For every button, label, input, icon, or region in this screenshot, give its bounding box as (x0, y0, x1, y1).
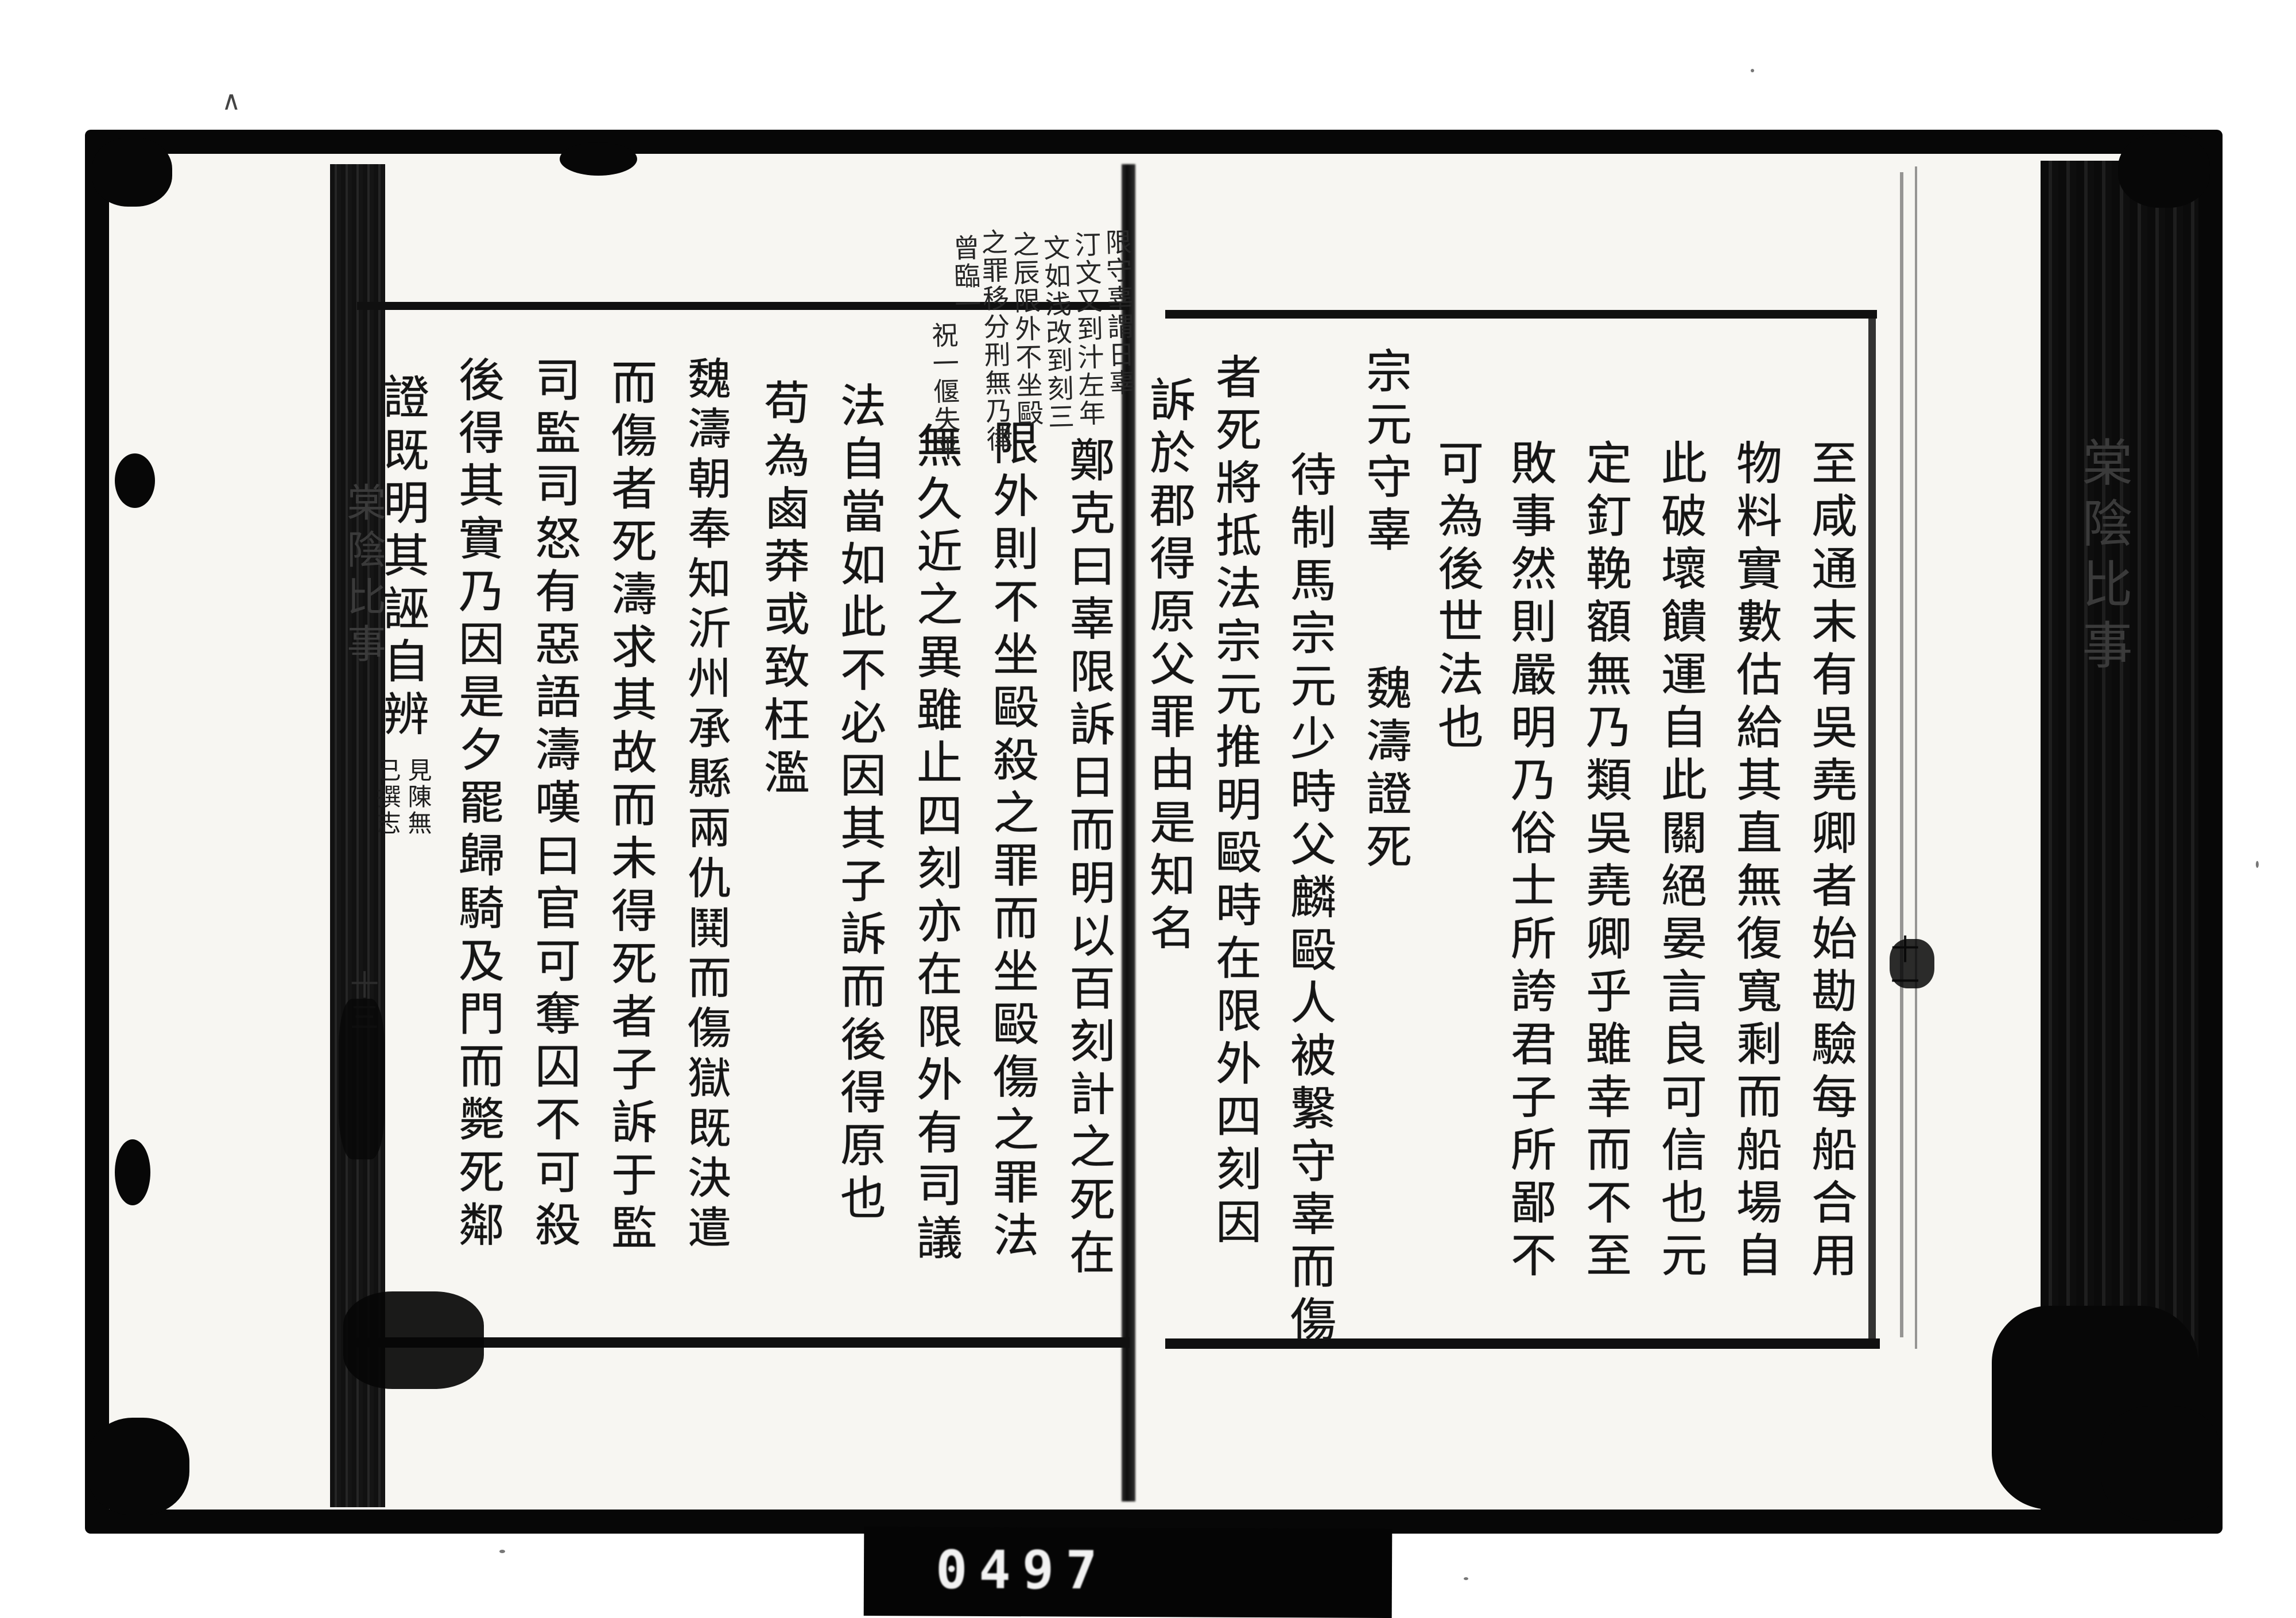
marginalia-column-6: 曾臨一 (951, 234, 979, 319)
page-edge-streak (1915, 166, 1917, 1349)
frame-edge-bump (560, 142, 637, 176)
marginalia-column-2: 汀文又到汁左年 (1072, 230, 1104, 428)
right-page-column-8: 待制馬宗元少時父麟毆人被繫守辜而傷 (1286, 451, 1332, 1348)
right-page-column-9: 者死將抵法宗元推明毆時在限外四刻因 (1211, 353, 1257, 1251)
page-edge-streak (1900, 172, 1903, 1337)
left-page-column-6: 魏濤朝奉知沂州承縣兩仇鬨而傷獄既決遣 (683, 356, 727, 1255)
right-page-column-6: 可為後世法也 (1433, 439, 1479, 756)
right-page-column-1: 至咸通末有吳堯卿者始勘驗每船合用 (1807, 439, 1853, 1284)
right-page-column-3: 此破壞饋運自此關絕晏言良可信也元 (1657, 439, 1702, 1284)
left-page-column-9: 後得其實乃因是夕罷歸騎及門而斃死鄰 (454, 356, 500, 1254)
marginalia-column-7: 祝一偃失平 (929, 321, 959, 462)
film-blotch (339, 999, 385, 1159)
text-frame-top-rule-right-page (1165, 310, 1877, 319)
text-frame-bottom-rule-right-page (1165, 1338, 1880, 1349)
left-page-column-10: 證既明其誣自辨 (379, 373, 425, 743)
marginalia-column-3: 文如浅改到刻三 (1041, 234, 1073, 431)
text-frame-right-rule (1868, 315, 1876, 1348)
frame-edge-bump (115, 453, 155, 508)
dust-speck (1751, 69, 1754, 72)
leaf-number-smudge (1890, 939, 1934, 988)
source-note-column-1: 見陳無 (405, 758, 429, 837)
frame-corner-blob (92, 138, 172, 207)
right-page-column-4: 定釘鞔額無乃類吳堯卿乎雖幸而不至 (1581, 439, 1627, 1284)
right-page-column-2: 物料實數估給其直無復寬剩而船場自 (1732, 439, 1778, 1284)
marginalia-column-5: 之罪移分刑無乃律 (979, 228, 1011, 453)
stray-pencil-mark: ∧ (222, 85, 241, 116)
frame-counter-digits: 0497 (936, 1527, 1109, 1617)
right-page-column-10: 訴於郡得原父罪由是知名 (1145, 376, 1191, 957)
left-page-column-4: 法自當如此不必因其子訴而後得原也 (836, 382, 882, 1227)
source-note-column-2: 己撰志 (374, 758, 398, 837)
frame-counter-bar: 0497 (864, 1527, 1393, 1618)
left-page-column-8: 司監司怒有惡語濤嘆曰官可奪囚不可殺 (530, 356, 576, 1254)
dust-speck (499, 1550, 505, 1553)
dust-speck (2256, 861, 2259, 868)
frame-corner-blob (2101, 1406, 2221, 1521)
frame-corner-blob (2118, 133, 2210, 208)
case-title-column: 宗元守辜 魏濤證死 (1362, 347, 1407, 875)
dust-speck (1464, 1577, 1468, 1580)
frame-edge-bump (115, 1139, 150, 1205)
marginalia-column-1: 限守辜謂日辜 (1103, 228, 1134, 397)
frame-corner-blob (86, 1418, 189, 1515)
film-damage-blotch (343, 1291, 484, 1389)
left-page-column-1: 鄭克曰辜限訴日而明以百刻計之死在 (1065, 436, 1111, 1281)
marginalia-column-4: 之辰限外不坐毆 (1010, 230, 1042, 428)
left-page-column-2: 限外則不坐毆殺之罪而坐毆傷之罪法 (988, 419, 1034, 1264)
left-page-column-5: 苟為鹵莽或致枉濫 (759, 379, 805, 801)
left-page-column-7: 而傷者死濤求其故而未得死者子訴于監 (607, 359, 653, 1256)
left-page-column-3: 無久近之異雖止四刻亦在限外有司議 (912, 422, 958, 1267)
right-page-column-5: 敗事然則嚴明乃俗士所誇君子所鄙不 (1506, 439, 1552, 1284)
microfilm-scan: { "film": { "counter": "0497", "stray_ma… (0, 0, 2296, 1617)
spine-title-right: 棠陰比事 (2077, 436, 2127, 680)
